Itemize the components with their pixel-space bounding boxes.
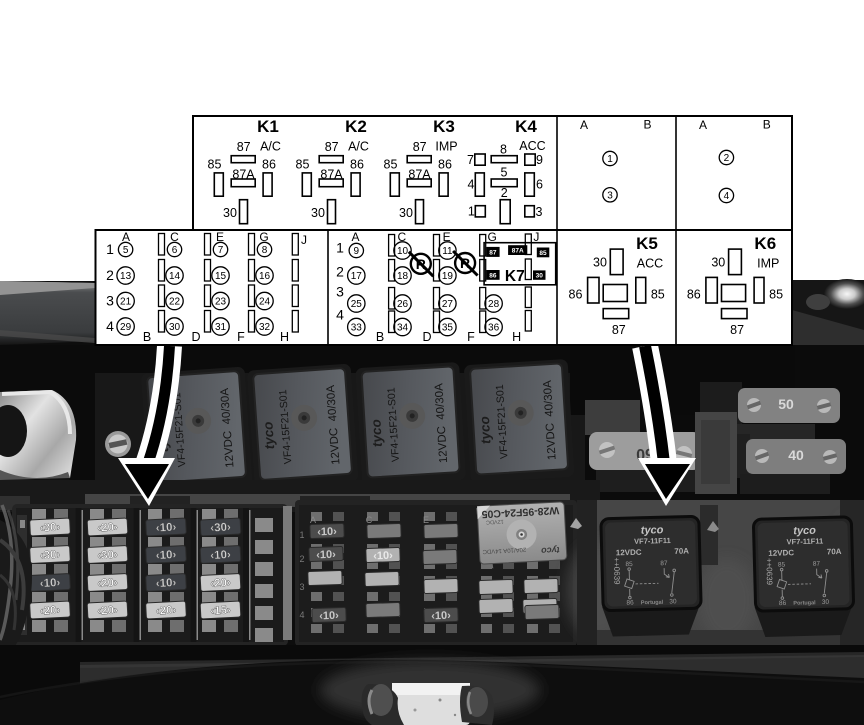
- svg-text:87: 87: [489, 250, 497, 257]
- svg-text:86: 86: [626, 599, 634, 606]
- svg-text:87: 87: [660, 560, 668, 567]
- svg-text:‹10›: ‹10›: [156, 521, 177, 534]
- svg-text:32: 32: [259, 322, 271, 333]
- svg-text:++0639: ++0639: [612, 557, 622, 585]
- svg-text:4: 4: [299, 610, 304, 620]
- svg-text:IMP: IMP: [435, 140, 457, 154]
- svg-text:1: 1: [607, 154, 613, 165]
- svg-text:30: 30: [399, 206, 413, 220]
- svg-text:9: 9: [354, 246, 360, 257]
- svg-text:H: H: [512, 330, 521, 344]
- svg-text:8: 8: [262, 245, 268, 256]
- svg-text:K7: K7: [505, 268, 525, 285]
- svg-text:5: 5: [123, 245, 129, 256]
- svg-text:D: D: [422, 330, 431, 344]
- svg-text:J: J: [533, 230, 539, 244]
- svg-text:1: 1: [468, 205, 475, 219]
- svg-text:7: 7: [218, 245, 224, 256]
- svg-text:ACC: ACC: [637, 257, 663, 271]
- svg-text:85: 85: [539, 250, 547, 257]
- svg-text:30: 30: [311, 206, 325, 220]
- svg-text:‹30›: ‹30›: [210, 521, 231, 534]
- svg-text:87: 87: [612, 323, 626, 337]
- svg-text:‹20›: ‹20›: [156, 604, 177, 617]
- svg-text:F: F: [467, 330, 475, 344]
- svg-text:70A: 70A: [827, 547, 842, 556]
- svg-text:11: 11: [442, 246, 453, 257]
- svg-text:31: 31: [215, 322, 227, 333]
- svg-text:24: 24: [259, 297, 271, 308]
- svg-text:‹20›: ‹20›: [97, 604, 118, 617]
- svg-text:C: C: [366, 515, 373, 525]
- svg-text:‹10›: ‹10›: [373, 550, 393, 563]
- svg-text:4: 4: [724, 191, 730, 202]
- svg-text:tyco: tyco: [260, 421, 277, 450]
- svg-text:13: 13: [120, 271, 132, 282]
- svg-text:17: 17: [351, 271, 363, 282]
- svg-text:6: 6: [536, 178, 543, 192]
- svg-text:VF7-11F11: VF7-11F11: [634, 536, 671, 546]
- svg-text:34: 34: [397, 323, 409, 334]
- svg-text:4: 4: [336, 307, 344, 323]
- svg-text:++0639: ++0639: [764, 558, 774, 586]
- svg-text:VF7-11F11: VF7-11F11: [786, 536, 823, 546]
- svg-text:36: 36: [488, 323, 500, 334]
- svg-text:Portugal: Portugal: [793, 600, 816, 607]
- svg-text:29: 29: [120, 322, 132, 333]
- svg-text:tyco: tyco: [793, 525, 816, 538]
- svg-text:2: 2: [106, 267, 114, 283]
- svg-text:86: 86: [569, 288, 583, 302]
- svg-text:1: 1: [336, 240, 344, 256]
- svg-text:18: 18: [397, 271, 409, 282]
- svg-text:35: 35: [442, 323, 454, 334]
- svg-text:3: 3: [106, 293, 114, 309]
- svg-text:6: 6: [172, 245, 178, 256]
- svg-text:33: 33: [351, 323, 363, 334]
- svg-text:tyco: tyco: [641, 524, 664, 537]
- svg-text:K2: K2: [345, 117, 367, 136]
- svg-text:A: A: [351, 230, 359, 244]
- svg-text:30: 30: [593, 256, 607, 270]
- svg-text:30: 30: [822, 599, 830, 606]
- svg-text:‹30›: ‹30›: [40, 521, 61, 534]
- svg-text:‹30›: ‹30›: [40, 549, 61, 562]
- svg-text:2: 2: [501, 186, 508, 200]
- svg-text:70A: 70A: [674, 546, 689, 555]
- svg-text:IMP: IMP: [757, 257, 779, 271]
- svg-text:D: D: [191, 330, 200, 344]
- svg-text:7: 7: [467, 153, 474, 167]
- svg-text:26: 26: [397, 299, 409, 310]
- svg-text:K6: K6: [754, 234, 776, 253]
- svg-text:16: 16: [259, 271, 271, 282]
- svg-text:K1: K1: [257, 117, 279, 136]
- svg-text:4: 4: [106, 318, 114, 334]
- svg-text:A: A: [699, 118, 707, 132]
- svg-text:85: 85: [384, 158, 398, 172]
- svg-text:86: 86: [779, 600, 787, 607]
- svg-text:50: 50: [778, 396, 794, 412]
- svg-text:30: 30: [669, 598, 677, 605]
- svg-text:‹10›: ‹10›: [316, 549, 336, 562]
- svg-text:23: 23: [215, 297, 227, 308]
- svg-text:‹20›: ‹20›: [97, 521, 118, 534]
- svg-text:2: 2: [336, 264, 344, 280]
- svg-text:‹15›: ‹15›: [210, 604, 231, 617]
- svg-text:25: 25: [351, 299, 363, 310]
- svg-text:1: 1: [299, 530, 304, 540]
- svg-text:30: 30: [169, 322, 181, 333]
- svg-text:‹10›: ‹10›: [210, 549, 231, 562]
- svg-text:5: 5: [501, 166, 508, 180]
- svg-text:‹30›: ‹30›: [97, 549, 118, 562]
- svg-text:K5: K5: [636, 234, 658, 253]
- svg-text:E: E: [423, 515, 429, 525]
- svg-text:H: H: [280, 330, 289, 344]
- svg-text:85: 85: [208, 158, 222, 172]
- svg-text:‹20›: ‹20›: [210, 577, 231, 590]
- svg-text:B: B: [143, 330, 151, 344]
- svg-text:85: 85: [625, 561, 633, 568]
- svg-text:1: 1: [106, 241, 114, 257]
- svg-text:86: 86: [262, 158, 276, 172]
- svg-text:87: 87: [237, 140, 251, 154]
- svg-text:B: B: [643, 118, 651, 132]
- svg-text:85: 85: [778, 561, 786, 568]
- svg-text:2: 2: [724, 153, 730, 164]
- svg-text:8: 8: [500, 143, 507, 157]
- svg-text:A/C: A/C: [348, 140, 369, 154]
- svg-text:J: J: [301, 233, 307, 247]
- svg-text:85: 85: [651, 288, 665, 302]
- svg-text:87A: 87A: [512, 248, 524, 255]
- svg-text:A: A: [580, 118, 588, 132]
- svg-text:A/C: A/C: [260, 140, 281, 154]
- svg-text:87: 87: [813, 561, 821, 568]
- svg-text:2: 2: [299, 554, 304, 564]
- svg-text:‹10›: ‹10›: [156, 549, 177, 562]
- svg-text:A: A: [310, 515, 316, 525]
- svg-text:30: 30: [536, 273, 544, 280]
- svg-text:87: 87: [325, 140, 339, 154]
- svg-text:‹10›: ‹10›: [156, 577, 177, 590]
- svg-text:3: 3: [299, 582, 304, 592]
- svg-text:12VDC: 12VDC: [486, 518, 504, 525]
- svg-text:K4: K4: [515, 117, 537, 136]
- svg-text:14: 14: [169, 271, 181, 282]
- svg-text:ACC: ACC: [519, 139, 545, 153]
- svg-text:F: F: [237, 330, 245, 344]
- svg-text:86: 86: [687, 288, 701, 302]
- svg-text:85: 85: [769, 288, 783, 302]
- svg-text:tyco: tyco: [540, 545, 560, 556]
- svg-text:10: 10: [397, 246, 409, 257]
- svg-text:30: 30: [223, 206, 237, 220]
- svg-text:27: 27: [442, 299, 454, 310]
- svg-text:B: B: [763, 118, 771, 132]
- svg-text:K3: K3: [433, 117, 455, 136]
- svg-text:tyco: tyco: [477, 416, 494, 445]
- svg-text:21: 21: [120, 297, 132, 308]
- svg-text:19: 19: [442, 271, 454, 282]
- svg-text:40: 40: [788, 447, 804, 463]
- svg-text:B: B: [376, 330, 384, 344]
- svg-text:‹10›: ‹10›: [317, 526, 337, 539]
- svg-text:‹10›: ‹10›: [319, 610, 339, 623]
- svg-text:‹20›: ‹20›: [40, 604, 61, 617]
- svg-text:tyco: tyco: [368, 419, 385, 448]
- svg-text:86: 86: [438, 158, 452, 172]
- svg-text:28: 28: [488, 299, 500, 310]
- svg-text:12VDC: 12VDC: [768, 548, 794, 558]
- svg-text:87: 87: [413, 140, 427, 154]
- svg-text:‹10›: ‹10›: [40, 577, 61, 590]
- svg-text:9: 9: [536, 153, 543, 167]
- svg-text:3: 3: [336, 284, 344, 300]
- svg-text:3: 3: [607, 190, 613, 201]
- svg-text:G: G: [488, 230, 497, 244]
- svg-text:86: 86: [489, 273, 497, 280]
- svg-text:12VDC: 12VDC: [616, 548, 642, 558]
- svg-text:3: 3: [536, 205, 543, 219]
- svg-text:85: 85: [296, 158, 310, 172]
- svg-text:15: 15: [215, 271, 227, 282]
- svg-text:Portugal: Portugal: [641, 600, 664, 607]
- svg-text:87: 87: [730, 323, 744, 337]
- svg-text:22: 22: [169, 297, 181, 308]
- svg-text:‹10›: ‹10›: [431, 610, 451, 623]
- svg-text:4: 4: [468, 178, 475, 192]
- svg-text:‹20›: ‹20›: [97, 577, 118, 590]
- svg-text:30: 30: [711, 256, 725, 270]
- svg-text:86: 86: [350, 158, 364, 172]
